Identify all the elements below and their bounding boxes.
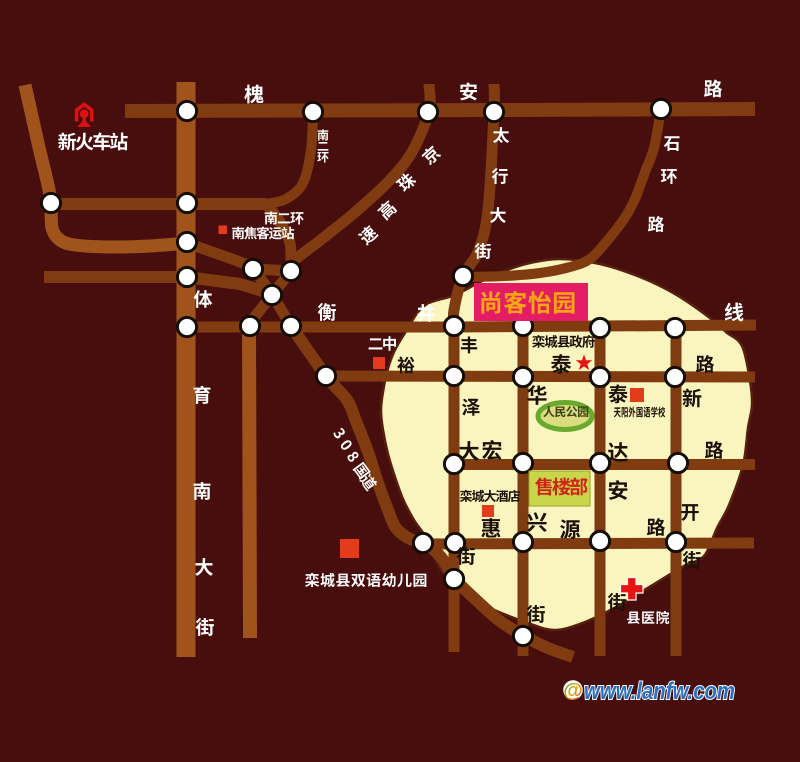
svg-text:@: @ <box>563 680 583 702</box>
svg-text:www.lanfw.com: www.lanfw.com <box>584 678 735 705</box>
